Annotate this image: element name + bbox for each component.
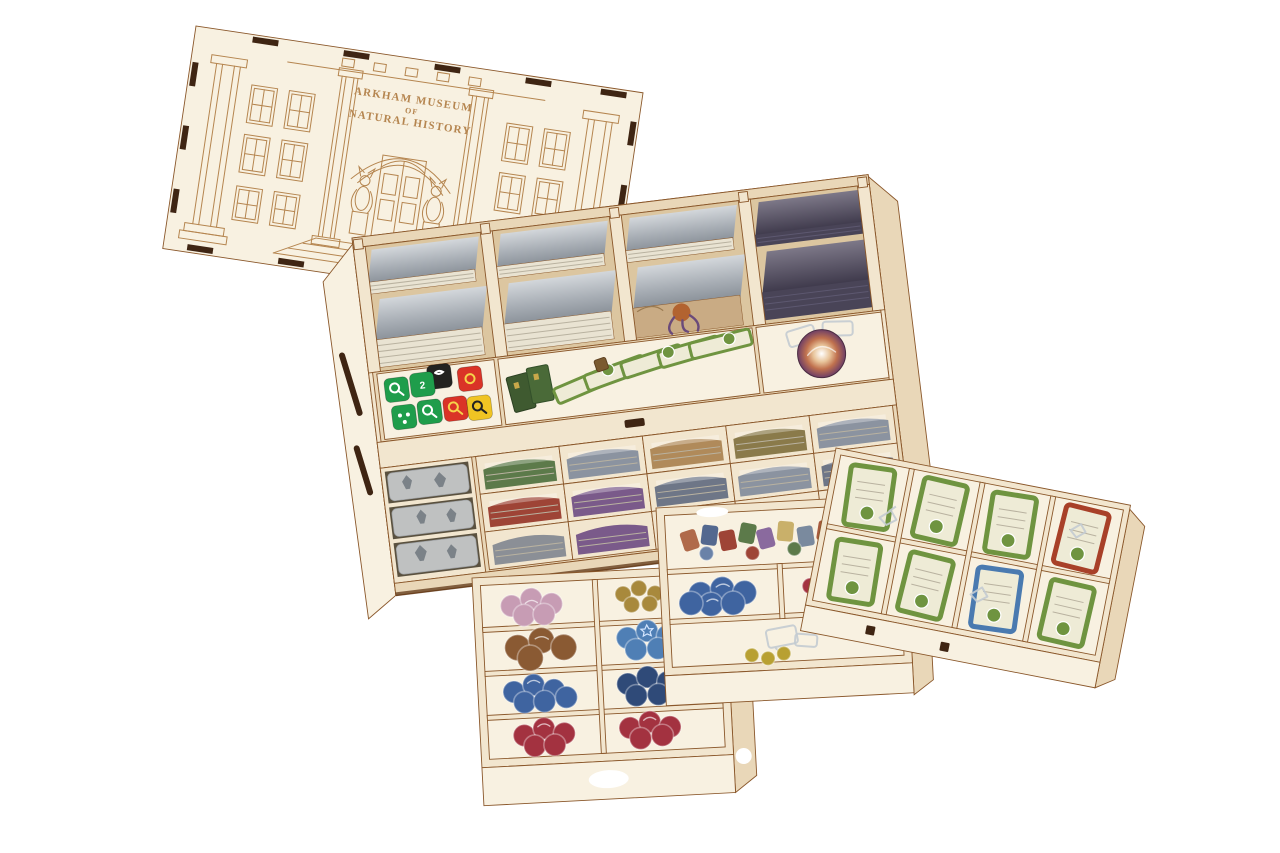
card-stack-dark — [757, 238, 882, 320]
barricade-tile-blue — [970, 567, 1022, 633]
die-yellow — [466, 394, 493, 421]
die-red — [442, 395, 469, 422]
card-stack — [370, 286, 495, 368]
die-green — [416, 398, 443, 425]
barricade-tile-green — [984, 492, 1037, 558]
product-photo-scene: ARKHAM MUSEUM OF NATURAL HISTORY — [0, 0, 1280, 853]
miniature-bag-shelves — [380, 457, 485, 583]
die-green — [391, 404, 418, 431]
organizer-photo-svg: ARKHAM MUSEUM OF NATURAL HISTORY — [0, 0, 1280, 853]
card-stack — [499, 270, 624, 352]
die-green: 2 — [409, 371, 436, 398]
barricade-tile-green — [828, 539, 881, 605]
barricade-tile-green — [843, 464, 895, 530]
die-green — [383, 376, 410, 403]
die-red — [457, 365, 484, 392]
card-stack-octopus-art — [628, 254, 754, 338]
